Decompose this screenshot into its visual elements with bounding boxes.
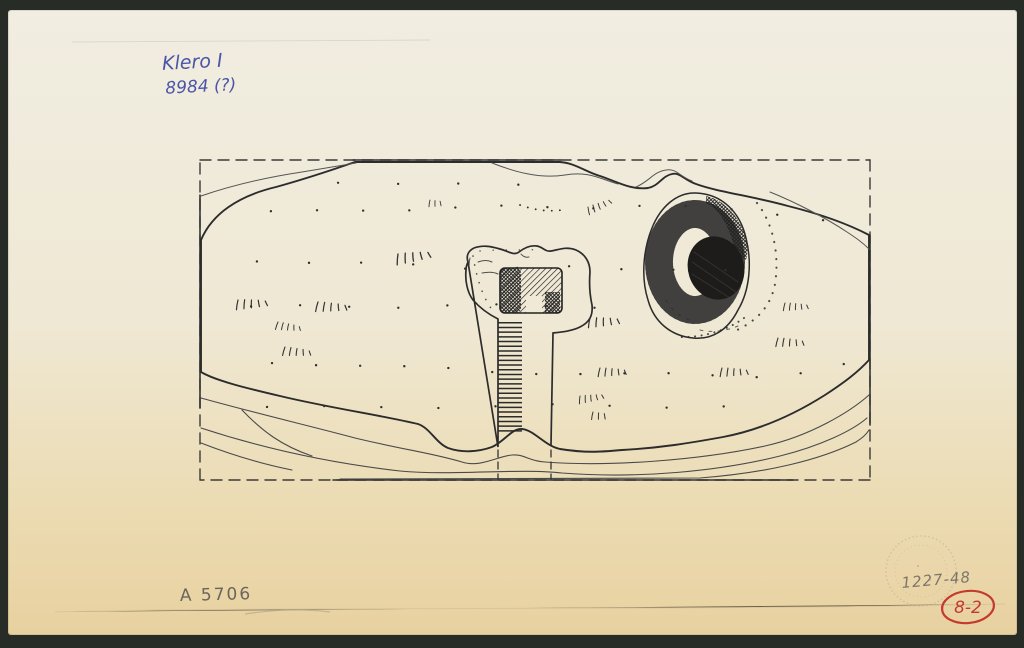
blue-note-line2: 8984 (?) (165, 75, 237, 99)
pencil-inventory-number: A 5706 (180, 584, 253, 606)
panel-notch (526, 296, 542, 313)
red-plate-number: 8-2 (954, 598, 982, 618)
blue-note-line1: Klero I (162, 50, 224, 75)
scan-canvas: Klero I 8984 (?) A 5706 1227-48 8-2 (0, 0, 1024, 648)
scanned-archival-plate: Klero I 8984 (?) A 5706 1227-48 8-2 (0, 0, 1024, 648)
